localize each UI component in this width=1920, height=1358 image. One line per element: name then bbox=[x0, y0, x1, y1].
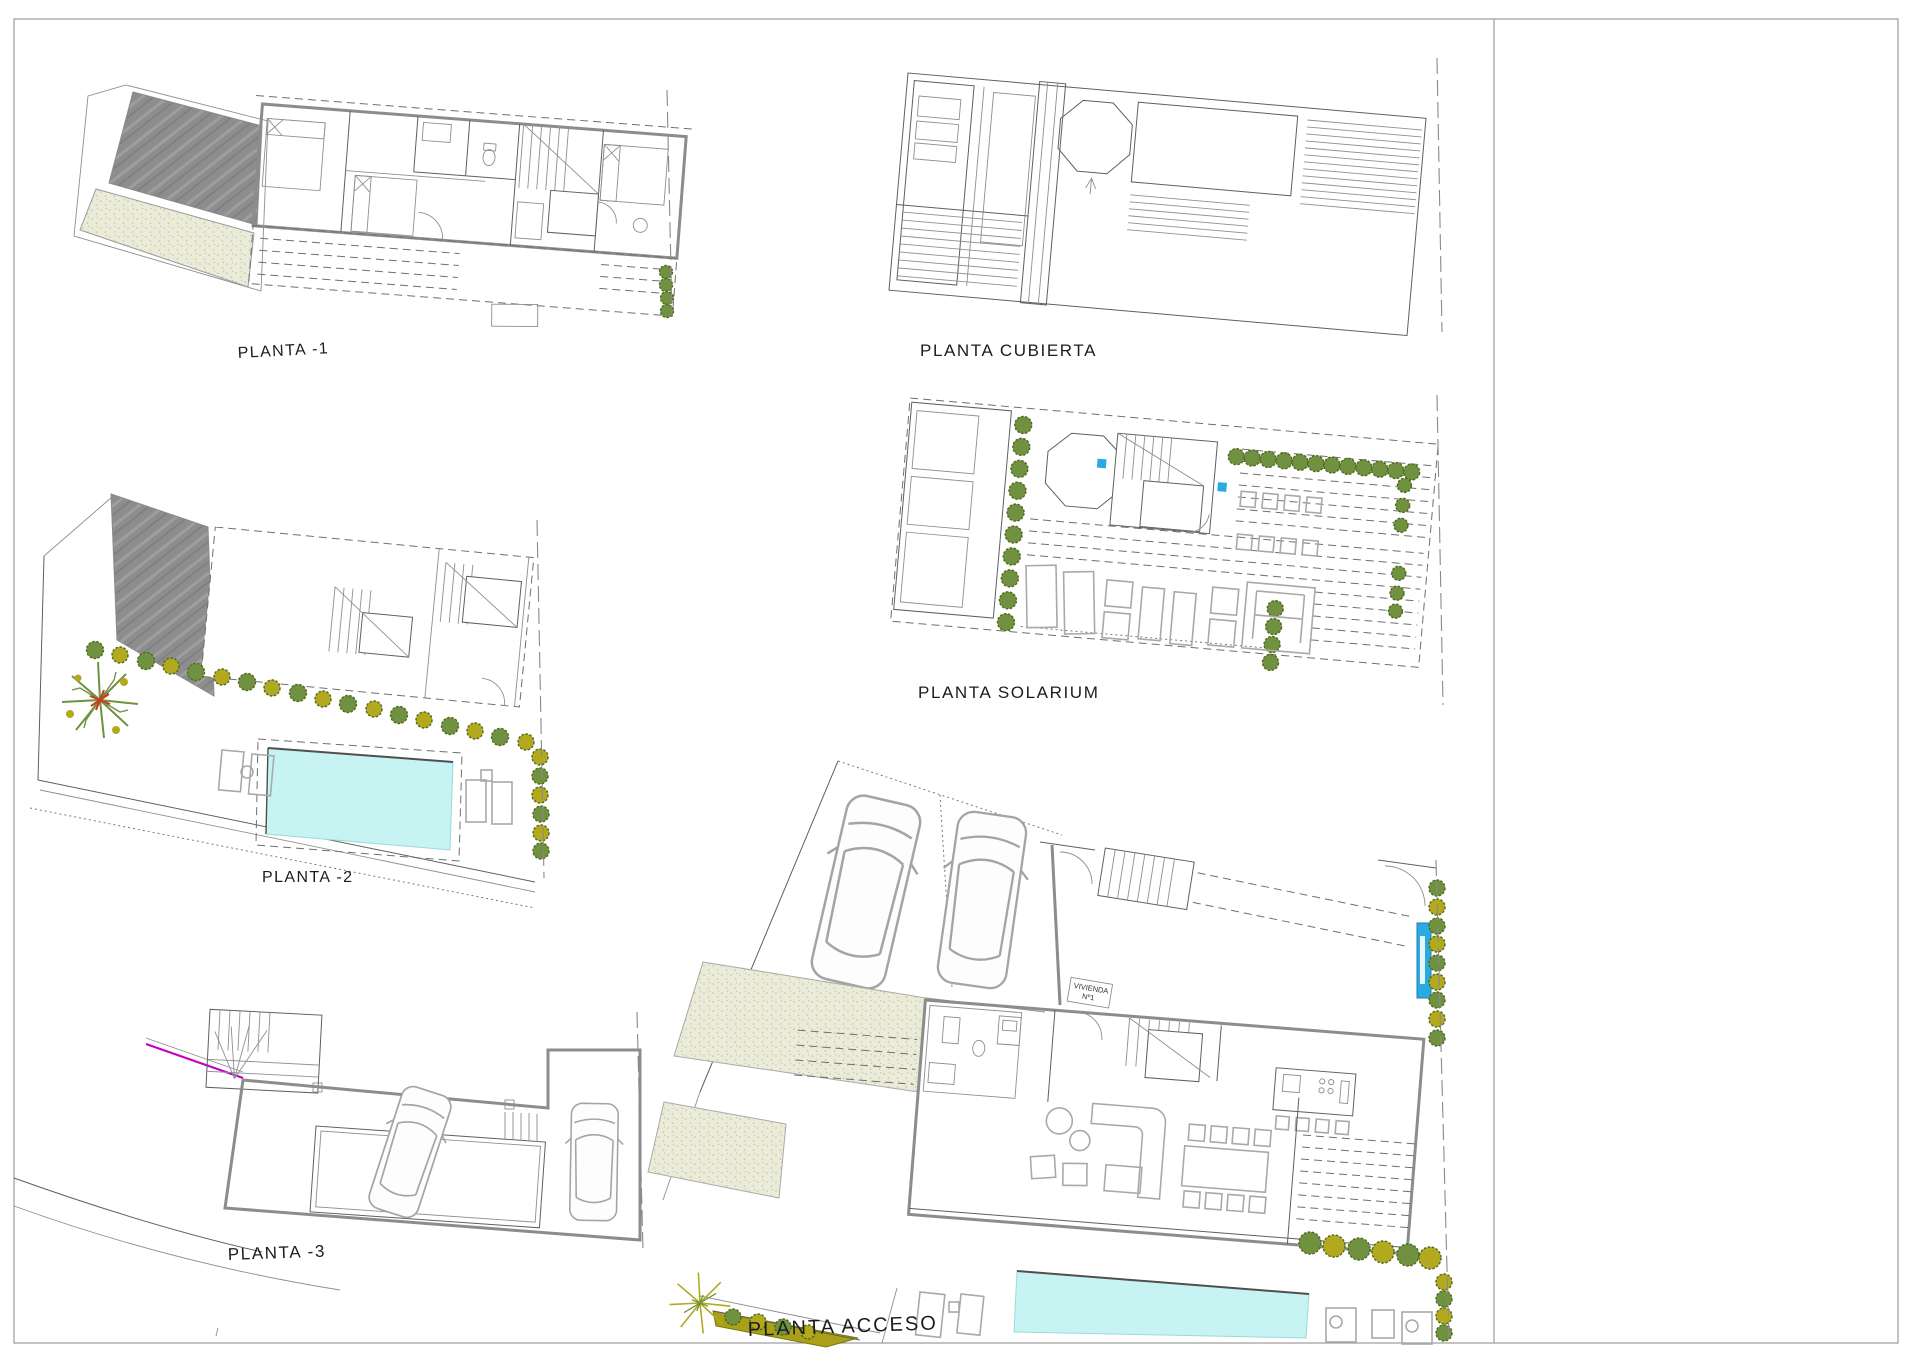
entry-and-stairs bbox=[1040, 842, 1436, 1005]
pergola-slats bbox=[897, 212, 1022, 286]
svg-text:Nº1: Nº1 bbox=[1081, 992, 1095, 1003]
bed bbox=[351, 175, 417, 236]
plan-label-planta-solarium: PLANTA SOLARIUM bbox=[918, 683, 1099, 702]
plan-planta-acceso: VIVIENDA Nº1 bbox=[648, 761, 1452, 1347]
deck-lines bbox=[1287, 1098, 1418, 1254]
lot-line bbox=[1436, 860, 1449, 1343]
staircase bbox=[505, 1112, 537, 1142]
octagon-skylight bbox=[1056, 99, 1134, 176]
bed bbox=[600, 144, 668, 205]
sofa-set bbox=[1028, 1099, 1167, 1199]
pergola-slats bbox=[1127, 195, 1250, 240]
blue-marker bbox=[1217, 482, 1227, 492]
plan-label-planta-cubierta: PLANTA CUBIERTA bbox=[920, 341, 1097, 360]
tree-row bbox=[1228, 448, 1421, 481]
dining-set bbox=[1180, 1124, 1271, 1213]
parked-car bbox=[360, 1082, 459, 1223]
chair bbox=[633, 218, 648, 233]
plan-label-planta-minus1: PLANTA -1 bbox=[237, 340, 329, 362]
lot-line bbox=[1437, 395, 1443, 705]
gravel-terrace bbox=[674, 962, 926, 1092]
plan-planta-minus3: PLANTA -3 bbox=[14, 1009, 643, 1336]
feature-tree bbox=[62, 662, 138, 738]
bed bbox=[262, 118, 325, 190]
lot-line bbox=[1437, 58, 1442, 332]
pool bbox=[1014, 1271, 1309, 1338]
pool bbox=[256, 739, 462, 861]
building-floor-minus1 bbox=[240, 96, 692, 341]
tree-column bbox=[1436, 1274, 1452, 1341]
staircase bbox=[1110, 433, 1218, 534]
blue-marker bbox=[1097, 459, 1107, 469]
tree-column bbox=[532, 749, 549, 859]
parked-car bbox=[564, 1103, 624, 1221]
plan-planta-minus2: PLANTA -2 bbox=[30, 494, 549, 908]
staircase bbox=[516, 124, 604, 236]
lot-line bbox=[537, 520, 544, 878]
plans-drawing: PLANTA -1 bbox=[0, 0, 1920, 1358]
bathroom-fixtures bbox=[923, 1005, 1021, 1098]
plan-label-planta-acceso: PLANTA ACCESO bbox=[747, 1312, 938, 1341]
pergola-slats bbox=[1300, 120, 1422, 214]
vivienda-tag: VIVIENDA Nº1 bbox=[1067, 977, 1112, 1008]
plan-label-planta-minus2: PLANTA -2 bbox=[262, 869, 353, 886]
plan-planta-solarium: PLANTA SOLARIUM bbox=[889, 395, 1443, 705]
tree-row bbox=[1299, 1232, 1441, 1269]
road-curve bbox=[14, 1178, 262, 1252]
kitchen-island bbox=[1271, 1068, 1356, 1135]
plan-label-planta-minus3: PLANTA -3 bbox=[227, 1242, 326, 1264]
parked-car bbox=[800, 790, 932, 994]
parked-car bbox=[928, 809, 1036, 992]
plan-planta-minus1: PLANTA -1 bbox=[74, 85, 692, 362]
plan-planta-cubierta: PLANTA CUBIERTA bbox=[889, 58, 1442, 360]
staircase bbox=[1125, 1018, 1221, 1083]
floor-plan-sheet: PLANTA -1 bbox=[0, 0, 1920, 1358]
